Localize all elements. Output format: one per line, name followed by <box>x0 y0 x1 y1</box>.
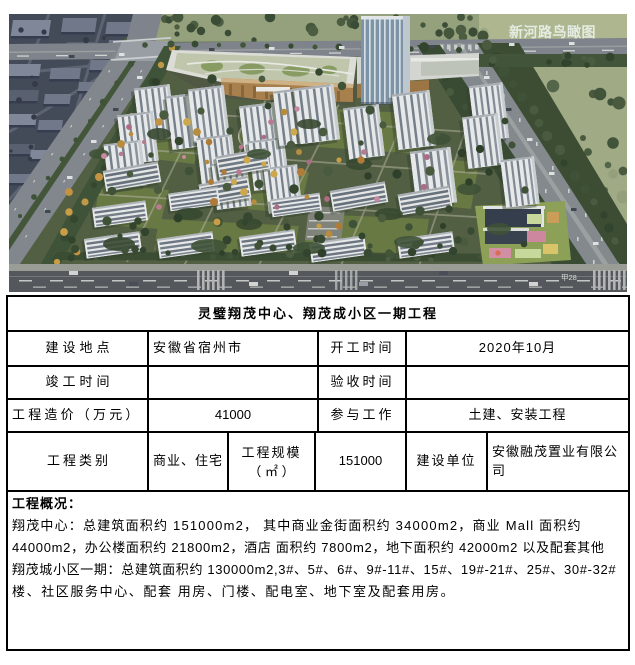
svg-text:甲28: 甲28 <box>561 273 577 282</box>
svg-text:新河路鸟瞰图: 新河路鸟瞰图 <box>509 24 596 40</box>
